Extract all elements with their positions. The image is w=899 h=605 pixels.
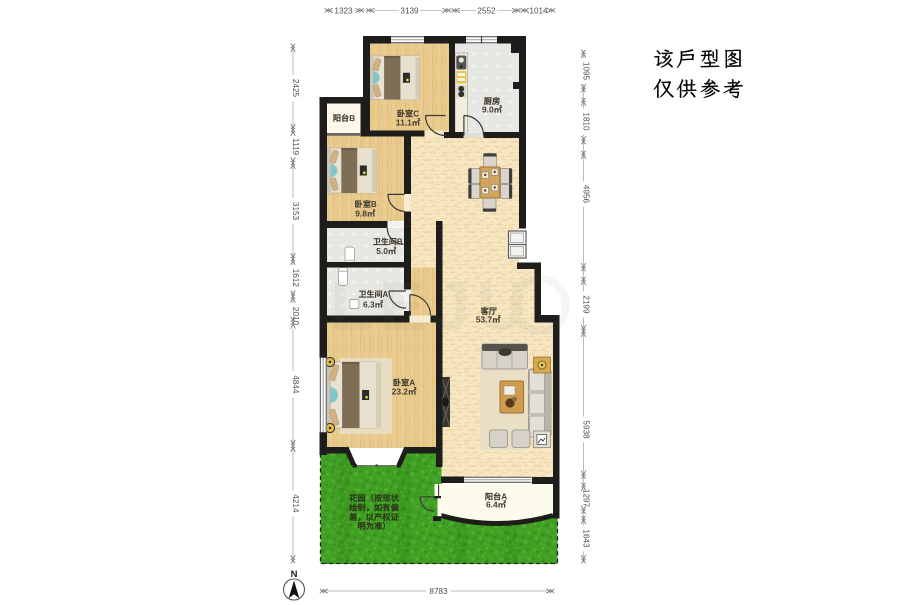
svg-text:4956: 4956 [582,185,591,204]
svg-text:2199: 2199 [582,295,591,314]
svg-text:6.4㎡: 6.4㎡ [486,499,507,509]
svg-text:1014: 1014 [529,6,548,15]
svg-text:4214: 4214 [291,494,300,513]
svg-text:阳台B: 阳台B [333,113,355,123]
svg-text:3153: 3153 [291,202,300,221]
svg-text:N: N [291,569,298,580]
svg-text:5938: 5938 [582,420,591,439]
svg-text:1643: 1643 [582,529,591,548]
svg-text:仅供参考: 仅供参考 [653,74,746,102]
svg-text:2425: 2425 [291,79,300,98]
svg-text:1297: 1297 [582,489,591,508]
svg-text:卫生间A: 卫生间A [359,290,389,299]
svg-text:5.0㎡: 5.0㎡ [376,246,397,256]
svg-text:1612: 1612 [291,269,300,288]
svg-text:该户型图: 该户型图 [653,44,746,72]
svg-text:9.0㎡: 9.0㎡ [482,104,503,114]
svg-text:1323: 1323 [334,6,353,15]
svg-text:2010: 2010 [291,307,300,326]
svg-text:1810: 1810 [582,112,591,131]
svg-text:6.3㎡: 6.3㎡ [363,300,384,310]
svg-text:LEJU: LEJU [330,267,533,345]
svg-text:23.2㎡: 23.2㎡ [392,387,417,397]
svg-text:4844: 4844 [291,375,300,394]
svg-text:2552: 2552 [477,6,496,15]
svg-text:明为准）: 明为准） [357,520,390,532]
svg-text:53.7㎡: 53.7㎡ [476,314,501,324]
svg-text:11.1㎡: 11.1㎡ [396,117,421,127]
svg-text:3139: 3139 [400,6,419,15]
svg-text:1119: 1119 [291,138,300,155]
svg-text:9.8㎡: 9.8㎡ [355,208,376,218]
svg-text:8783: 8783 [429,587,448,596]
svg-text:1095: 1095 [582,62,591,81]
